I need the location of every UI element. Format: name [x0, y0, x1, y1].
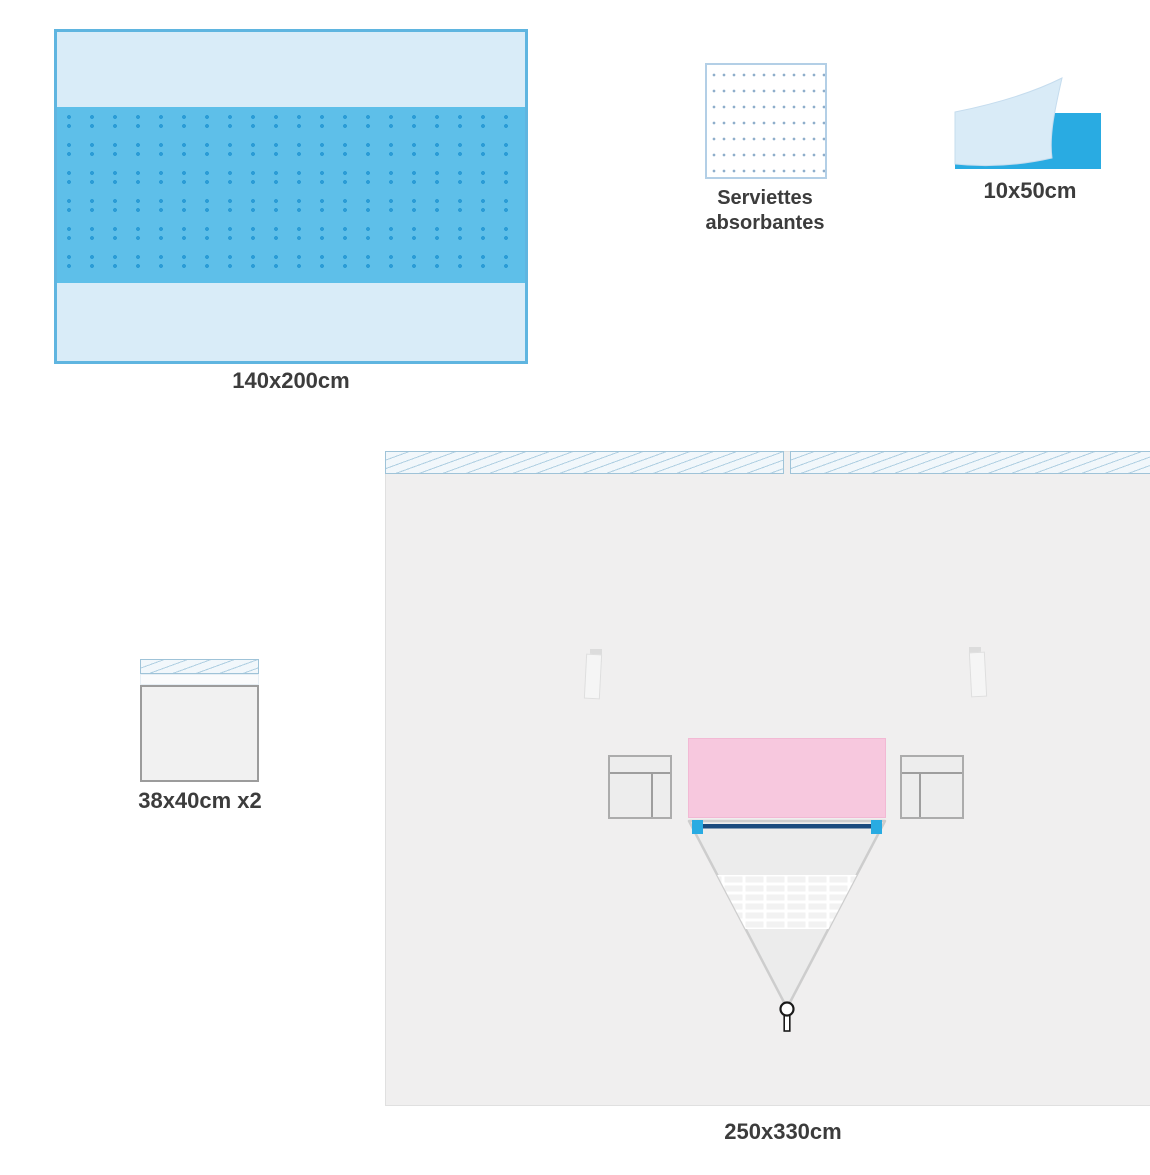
drape-140x200-label: 140x200cm — [54, 368, 528, 394]
rod-end-right-icon — [871, 820, 882, 834]
adhesive-strip-right — [790, 451, 1150, 474]
small-drape-label: 38x40cm x2 — [105, 788, 295, 814]
absorbent-dotted-zone — [57, 107, 525, 283]
adhesive-tape-illustration — [945, 71, 1115, 171]
fluid-collection-pouch — [681, 812, 893, 1037]
surgical-pack-contents-diagram: 140x200cm Serviettes absorbantes 10x50cm… — [40, 16, 1150, 1159]
main-drape-illustration — [385, 451, 1150, 1106]
pouch-flap — [902, 757, 962, 774]
tube-holder-left — [585, 649, 603, 699]
pouch-divider — [651, 774, 653, 817]
adhesive-strip-left — [385, 451, 784, 474]
absorbent-towel-label: Serviettes absorbantes — [670, 186, 860, 236]
drape-140x200-illustration — [54, 29, 528, 364]
absorbent-towel-illustration — [705, 63, 827, 179]
malleable-rod — [701, 824, 873, 829]
tube-holder-right — [968, 647, 986, 697]
pouch-flap — [610, 757, 670, 774]
tape-liner-sheet — [955, 78, 1062, 166]
fenestration-pink-zone — [688, 738, 886, 818]
pouch-divider — [919, 774, 921, 817]
tube-holder-flap — [969, 652, 987, 698]
instrument-pouch-right — [900, 755, 964, 819]
rod-end-left-icon — [692, 820, 703, 834]
tube-holder-flap — [584, 654, 602, 700]
instrument-pouch-left — [608, 755, 672, 819]
drain-port-icon — [781, 1003, 794, 1016]
main-drape-label: 250x330cm — [385, 1119, 1150, 1145]
small-drape-liner-strip — [140, 674, 259, 685]
pouch-mesh-filter — [709, 875, 865, 929]
adhesive-tape-label: 10x50cm — [945, 178, 1115, 204]
small-drape-illustration — [140, 685, 259, 782]
small-drape-adhesive-strip — [140, 659, 259, 674]
